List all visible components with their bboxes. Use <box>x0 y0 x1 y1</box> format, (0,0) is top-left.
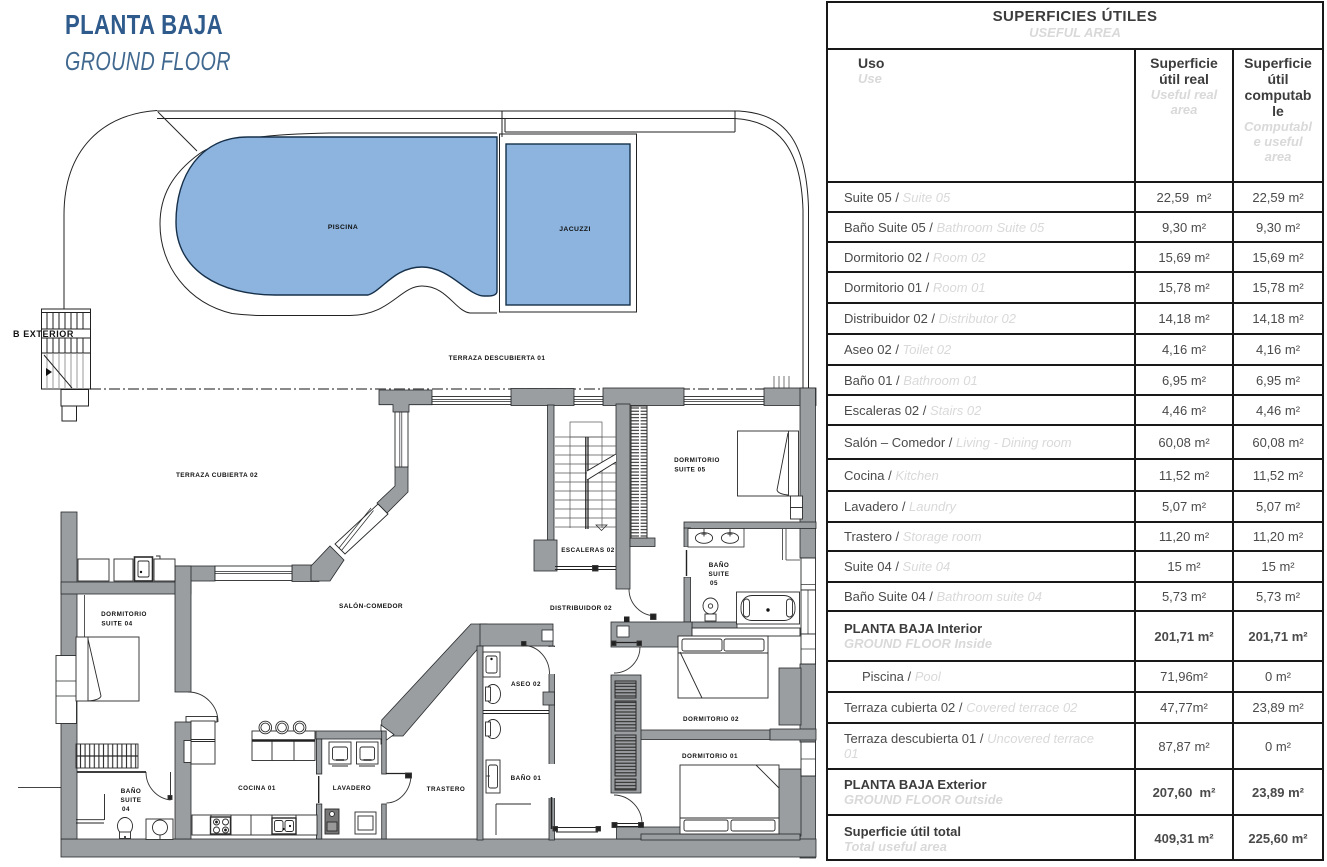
svg-text:04: 04 <box>122 806 130 813</box>
svg-text:B EXTERIOR: B EXTERIOR <box>13 329 74 339</box>
svg-text:05: 05 <box>710 580 718 587</box>
svg-text:TERRAZA CUBIERTA 02: TERRAZA CUBIERTA 02 <box>176 472 258 479</box>
svg-text:ESCALERAS 02: ESCALERAS 02 <box>561 547 615 554</box>
svg-text:JACUZZI: JACUZZI <box>559 226 591 233</box>
svg-text:DORMITORIO 02: DORMITORIO 02 <box>683 716 739 723</box>
svg-text:SALÓN-COMEDOR: SALÓN-COMEDOR <box>339 601 403 610</box>
svg-text:SUITE 05: SUITE 05 <box>674 467 705 474</box>
svg-text:SUITE 04: SUITE 04 <box>101 621 132 628</box>
svg-text:TERRAZA DESCUBIERTA 01: TERRAZA DESCUBIERTA 01 <box>449 355 546 362</box>
svg-text:ASEO 02: ASEO 02 <box>511 681 541 688</box>
svg-text:DORMITORIO: DORMITORIO <box>101 611 147 618</box>
svg-text:DISTRIBUIDOR 02: DISTRIBUIDOR 02 <box>550 605 612 612</box>
svg-text:SUITE: SUITE <box>708 571 729 578</box>
svg-text:PISCINA: PISCINA <box>328 224 358 231</box>
svg-text:BAÑO 01: BAÑO 01 <box>511 773 542 782</box>
svg-text:DORMITORIO 01: DORMITORIO 01 <box>682 753 738 760</box>
svg-text:BAÑO: BAÑO <box>709 560 730 569</box>
svg-text:COCINA 01: COCINA 01 <box>238 785 276 792</box>
svg-text:BAÑO: BAÑO <box>121 786 142 795</box>
svg-text:LAVADERO: LAVADERO <box>333 785 371 792</box>
svg-text:SUITE: SUITE <box>120 797 141 804</box>
svg-text:DORMITORIO: DORMITORIO <box>674 457 720 464</box>
svg-text:TRASTERO: TRASTERO <box>427 786 466 793</box>
